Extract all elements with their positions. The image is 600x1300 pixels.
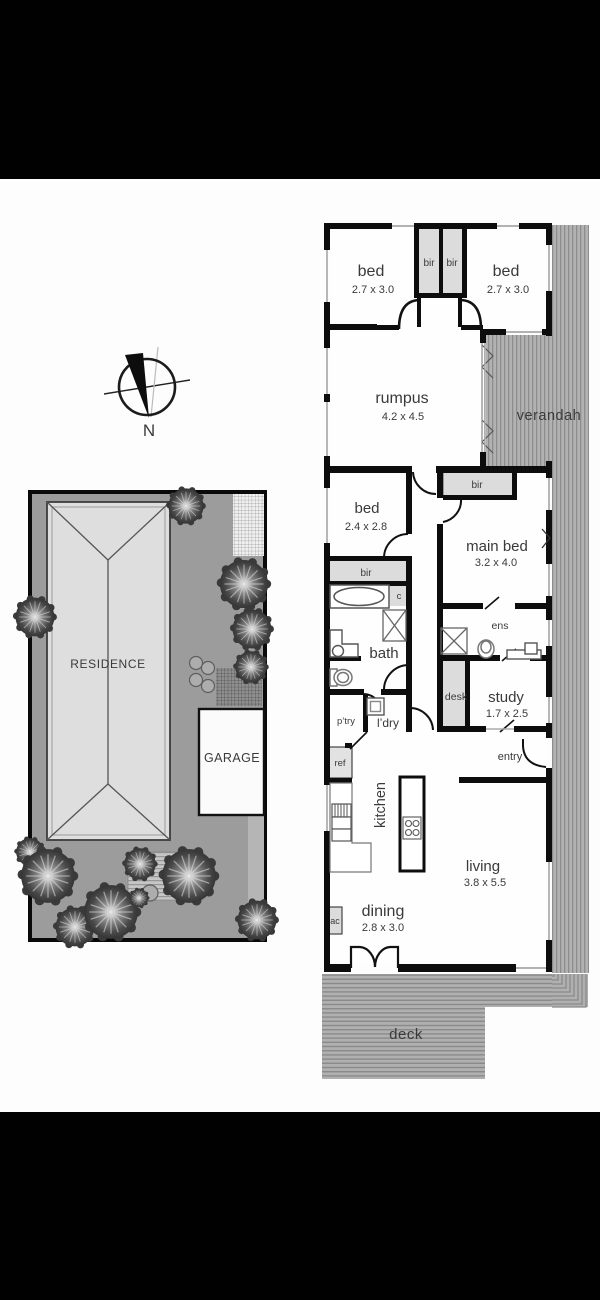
svg-text:bed: bed (493, 263, 520, 280)
svg-text:RESIDENCE: RESIDENCE (70, 657, 145, 671)
svg-text:2.7 x 3.0: 2.7 x 3.0 (352, 284, 394, 296)
svg-text:bed: bed (358, 263, 385, 280)
svg-text:study: study (488, 689, 524, 706)
svg-text:ens: ens (492, 620, 509, 632)
svg-text:4.2 x 4.5: 4.2 x 4.5 (382, 411, 424, 423)
svg-text:dining: dining (362, 903, 405, 920)
svg-text:2.7 x 3.0: 2.7 x 3.0 (487, 284, 529, 296)
svg-text:3.8 x 5.5: 3.8 x 5.5 (464, 877, 506, 889)
svg-text:verandah: verandah (517, 408, 581, 424)
svg-text:main bed: main bed (466, 538, 528, 555)
svg-text:deck: deck (389, 1026, 423, 1043)
svg-text:N: N (143, 421, 155, 440)
svg-text:l’dry: l’dry (377, 716, 399, 730)
svg-text:kitchen: kitchen (373, 782, 389, 828)
svg-text:ac: ac (330, 916, 340, 926)
svg-text:ref: ref (334, 758, 345, 769)
svg-text:rumpus: rumpus (375, 390, 428, 407)
svg-text:bath: bath (369, 645, 398, 662)
svg-text:desk: desk (445, 691, 468, 703)
svg-text:2.4 x 2.8: 2.4 x 2.8 (345, 521, 387, 533)
svg-text:c: c (397, 591, 402, 602)
svg-text:GARAGE: GARAGE (204, 751, 260, 765)
svg-text:bir: bir (446, 258, 458, 269)
svg-text:bir: bir (360, 568, 372, 579)
svg-text:bir: bir (423, 258, 435, 269)
svg-text:bir: bir (471, 480, 483, 491)
svg-text:p’try: p’try (337, 716, 355, 727)
svg-text:1.7 x 2.5: 1.7 x 2.5 (486, 708, 528, 720)
svg-text:entry: entry (498, 751, 523, 763)
svg-text:bed: bed (354, 500, 379, 517)
svg-text:living: living (466, 858, 500, 875)
svg-text:2.8 x 3.0: 2.8 x 3.0 (362, 922, 404, 934)
svg-text:3.2 x 4.0: 3.2 x 4.0 (475, 557, 517, 569)
